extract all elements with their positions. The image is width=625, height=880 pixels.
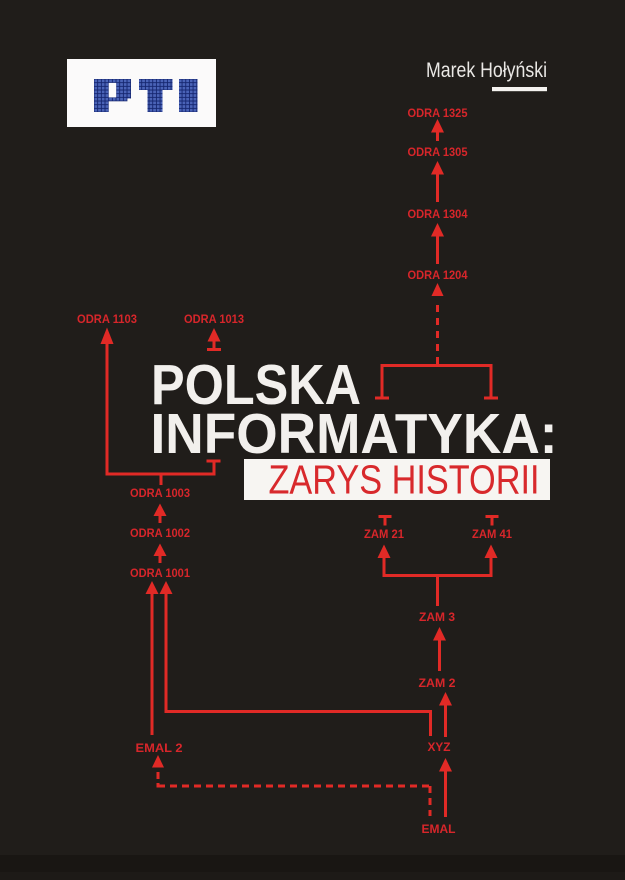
svg-text:ZARYS HISTORII: ZARYS HISTORII — [269, 457, 540, 503]
svg-text:ODRA 1001: ODRA 1001 — [130, 568, 191, 580]
svg-text:ZAM 21: ZAM 21 — [364, 529, 405, 541]
svg-text:ODRA 1013: ODRA 1013 — [184, 314, 244, 326]
svg-text:ODRA 1103: ODRA 1103 — [77, 314, 137, 326]
svg-text:Marek Hołyński: Marek Hołyński — [426, 58, 547, 82]
svg-text:ODRA 1325: ODRA 1325 — [408, 108, 469, 120]
svg-text:ODRA 1204: ODRA 1204 — [408, 270, 469, 282]
svg-text:ODRA 1304: ODRA 1304 — [408, 209, 469, 221]
svg-text:ODRA 1003: ODRA 1003 — [130, 488, 190, 500]
svg-text:XYZ: XYZ — [428, 742, 451, 754]
svg-text:ZAM 41: ZAM 41 — [472, 529, 513, 541]
svg-text:ODRA 1305: ODRA 1305 — [408, 147, 469, 159]
svg-text:EMAL 2: EMAL 2 — [136, 743, 183, 755]
svg-text:ZAM 3: ZAM 3 — [419, 612, 455, 624]
svg-text:ZAM 2: ZAM 2 — [419, 678, 456, 690]
svg-text:ODRA 1002: ODRA 1002 — [130, 528, 190, 540]
svg-text:EMAL: EMAL — [422, 824, 456, 836]
